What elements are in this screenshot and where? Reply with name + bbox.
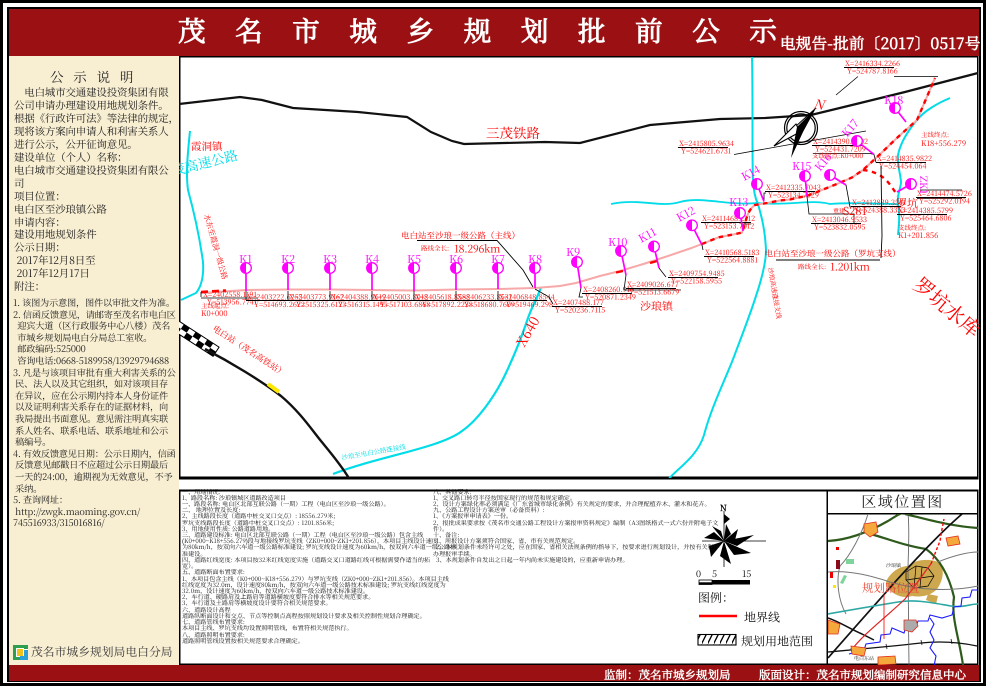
svg-text:Y=519469.298: Y=519469.298: [506, 300, 553, 310]
svg-text:地界线: 地界线: [744, 609, 780, 626]
svg-text:路线全长:: 路线全长:: [798, 262, 826, 271]
svg-text:K18+556.279: K18+556.279: [921, 138, 966, 149]
svg-text:Y=524454.064: Y=524454.064: [879, 162, 926, 172]
svg-text:电白站至沙琅一级公路（罗坑支线）: 电白站至沙琅一级公路（罗坑支线）: [765, 248, 901, 260]
svg-text:Y=524787.8166: Y=524787.8166: [847, 67, 898, 77]
svg-text:罗坑: 罗坑: [896, 195, 918, 211]
svg-text:Y=522158.5955: Y=522158.5955: [671, 277, 722, 287]
svg-text:K8: K8: [528, 251, 542, 267]
svg-text:规划路位置: 规划路位置: [862, 580, 920, 596]
svg-text:K13: K13: [729, 194, 748, 210]
svg-text:沙琅镇: 沙琅镇: [886, 562, 902, 569]
svg-text:霞洞镇: 霞洞镇: [191, 139, 224, 154]
svg-text:规划用地范围: 规划用地范围: [741, 633, 813, 650]
svg-text:电白站至沙琅一级公路（主线）: 电白站至沙琅一级公路（主线）: [401, 230, 520, 242]
svg-text:水东至霞洞一级公路: 水东至霞洞一级公路: [201, 213, 230, 281]
svg-text:K1: K1: [239, 251, 252, 267]
svg-text:沙琅至电白公路连接线: 沙琅至电白公路连接线: [341, 442, 407, 462]
svg-text:K18: K18: [884, 92, 903, 108]
svg-text:15: 15: [742, 567, 751, 580]
svg-text:S281: S281: [843, 203, 867, 219]
svg-text:K0+000: K0+000: [201, 308, 228, 319]
svg-text:Y=523832.0595: Y=523832.0595: [814, 223, 866, 233]
svg-text:K6: K6: [449, 251, 463, 267]
svg-text:Y=521513.6679: Y=521513.6679: [629, 288, 679, 298]
svg-text:Y=525292.0194: Y=525292.0194: [919, 197, 970, 207]
svg-text:罗坑水库: 罗坑水库: [908, 269, 979, 343]
svg-text:K2: K2: [281, 251, 295, 267]
svg-text:图例：: 图例：: [698, 589, 734, 606]
svg-text:K10: K10: [608, 234, 627, 250]
svg-text:K9: K9: [566, 244, 580, 260]
svg-text:K1+201.856: K1+201.856: [898, 230, 938, 241]
svg-text:ZK1: ZK1: [917, 176, 932, 194]
svg-text:沙琅高速连接支线: 沙琅高速连接支线: [766, 267, 784, 320]
svg-text:5: 5: [712, 567, 717, 580]
svg-text:N: N: [720, 502, 727, 514]
svg-text:X640: X640: [510, 312, 543, 350]
svg-text:Y=522564.8881: Y=522564.8881: [707, 256, 759, 266]
svg-text:Y=520236.7115: Y=520236.7115: [555, 306, 605, 316]
svg-text:K15: K15: [792, 158, 811, 174]
svg-text:沙琅镇: 沙琅镇: [640, 298, 674, 314]
svg-text:0: 0: [696, 567, 701, 580]
svg-text:K7: K7: [491, 251, 505, 267]
svg-text:Y=523134.7029: Y=523134.7029: [768, 191, 819, 201]
svg-text:K4: K4: [365, 251, 379, 267]
svg-text:路线全长:: 路线全长:: [421, 244, 449, 253]
svg-text:1.201km: 1.201km: [830, 260, 870, 275]
svg-text:K5: K5: [407, 251, 421, 267]
svg-text:Y=524621.6731: Y=524621.6731: [681, 147, 732, 157]
svg-text:Y=525464.6806: Y=525464.6806: [900, 214, 952, 224]
svg-text:三茂铁路: 三茂铁路: [486, 122, 540, 142]
svg-text:Y=523153.7012: Y=523153.7012: [704, 222, 754, 232]
svg-text:K3: K3: [323, 251, 337, 267]
svg-text:电白站（茂名高铁站）: 电白站（茂名高铁站）: [210, 322, 288, 378]
